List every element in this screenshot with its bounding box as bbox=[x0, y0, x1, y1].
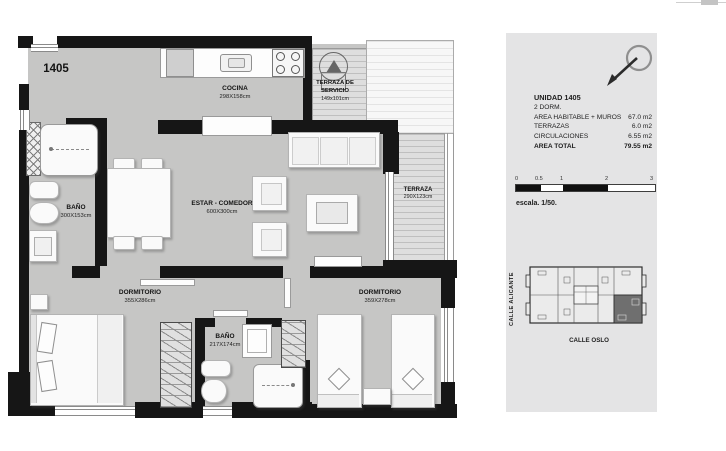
terrace-slider-window bbox=[385, 172, 394, 260]
unit-info-block: UNIDAD 1405 2 DORM. AREA HABITABLE + MUR… bbox=[534, 93, 652, 150]
unit-number: 1405 bbox=[43, 63, 69, 75]
wall bbox=[310, 266, 457, 278]
window bbox=[203, 406, 232, 416]
page-corner-mark bbox=[701, 0, 718, 5]
window bbox=[20, 110, 30, 130]
scale-bar: 0 0.5 1 2 3 bbox=[515, 176, 656, 198]
wall bbox=[441, 266, 455, 308]
scale-bar-segments bbox=[515, 184, 656, 192]
window bbox=[55, 406, 135, 416]
wall bbox=[158, 120, 202, 134]
shower-wall-hatch bbox=[26, 122, 41, 176]
nightstand bbox=[30, 294, 48, 310]
shower bbox=[40, 124, 98, 176]
tv-console bbox=[314, 256, 362, 267]
sofa bbox=[288, 132, 380, 168]
single-bed bbox=[391, 314, 435, 408]
unit-number-label: 1405 bbox=[34, 62, 78, 78]
floor-plan-sheet: 1405 COCINA 298X158cm TERRAZA DE SERVICI… bbox=[0, 0, 726, 451]
north-arrow-icon bbox=[601, 38, 656, 88]
door-leaf bbox=[213, 310, 248, 317]
area-row: TERRAZAS 6.0 m2 bbox=[534, 123, 652, 130]
bathroom-sink bbox=[29, 181, 59, 199]
room-label-dormitorio-1: DORMITORIO 355X286cm bbox=[98, 289, 182, 306]
wall bbox=[383, 132, 399, 174]
kitchen-peninsula-counter bbox=[202, 116, 272, 136]
wardrobe bbox=[160, 322, 192, 408]
window bbox=[444, 308, 454, 382]
single-bed bbox=[317, 314, 362, 408]
unit-subtitle: 2 DORM. bbox=[534, 104, 652, 111]
double-bed bbox=[30, 314, 124, 406]
area-total-row: AREA TOTAL 79.55 m2 bbox=[534, 143, 652, 150]
dining-chair bbox=[141, 236, 163, 250]
room-label-terraza: TERRAZA 290X123cm bbox=[394, 186, 442, 201]
wall bbox=[72, 266, 100, 278]
wall bbox=[441, 382, 455, 418]
unit-title: UNIDAD 1405 bbox=[534, 93, 652, 102]
dining-chair bbox=[113, 236, 135, 250]
room-label-estar-comedor: ESTAR - COMEDOR 600X300cm bbox=[183, 200, 261, 217]
street-label-bottom: CALLE OSLO bbox=[534, 337, 644, 344]
wall bbox=[160, 266, 283, 278]
room-label-dormitorio-2: DORMITORIO 359X278cm bbox=[338, 289, 422, 306]
bathroom-sink bbox=[201, 360, 231, 377]
stove bbox=[272, 49, 304, 77]
door-leaf bbox=[140, 279, 195, 286]
room-label-bano-1: BAÑO 300X153cm bbox=[54, 204, 98, 221]
area-row: CIRCULACIONES 6.55 m2 bbox=[534, 133, 652, 140]
toilet bbox=[201, 379, 227, 403]
room-label-bano-2: BAÑO 217X174cm bbox=[203, 333, 247, 350]
armchair bbox=[252, 222, 287, 257]
street-label-left: CALLE ALICANTE bbox=[509, 263, 519, 335]
washing-machine bbox=[29, 230, 57, 262]
wall bbox=[195, 318, 215, 327]
terrace-outer-rail bbox=[447, 133, 454, 261]
room-label-cocina: COCINA 298X158cm bbox=[201, 85, 269, 102]
room-label-terraza-servicio: TERRAZA DE SERVICIO 149x101cm bbox=[306, 80, 364, 103]
key-plan bbox=[524, 259, 650, 335]
kitchen-sink bbox=[220, 54, 252, 72]
wall bbox=[19, 84, 29, 110]
wardrobe bbox=[281, 320, 306, 368]
window bbox=[31, 44, 58, 52]
door-leaf bbox=[284, 278, 291, 308]
info-panel: UNIDAD 1405 2 DORM. AREA HABITABLE + MUR… bbox=[506, 33, 657, 412]
fridge bbox=[166, 49, 194, 77]
coffee-table bbox=[306, 194, 358, 232]
wall bbox=[57, 36, 307, 48]
scale-label: escala. 1/50. bbox=[516, 200, 557, 207]
dining-table bbox=[107, 168, 171, 238]
shower bbox=[253, 364, 303, 408]
nightstand bbox=[363, 388, 391, 405]
area-row: AREA HABITABLE + MUROS 67.0 m2 bbox=[534, 114, 652, 121]
